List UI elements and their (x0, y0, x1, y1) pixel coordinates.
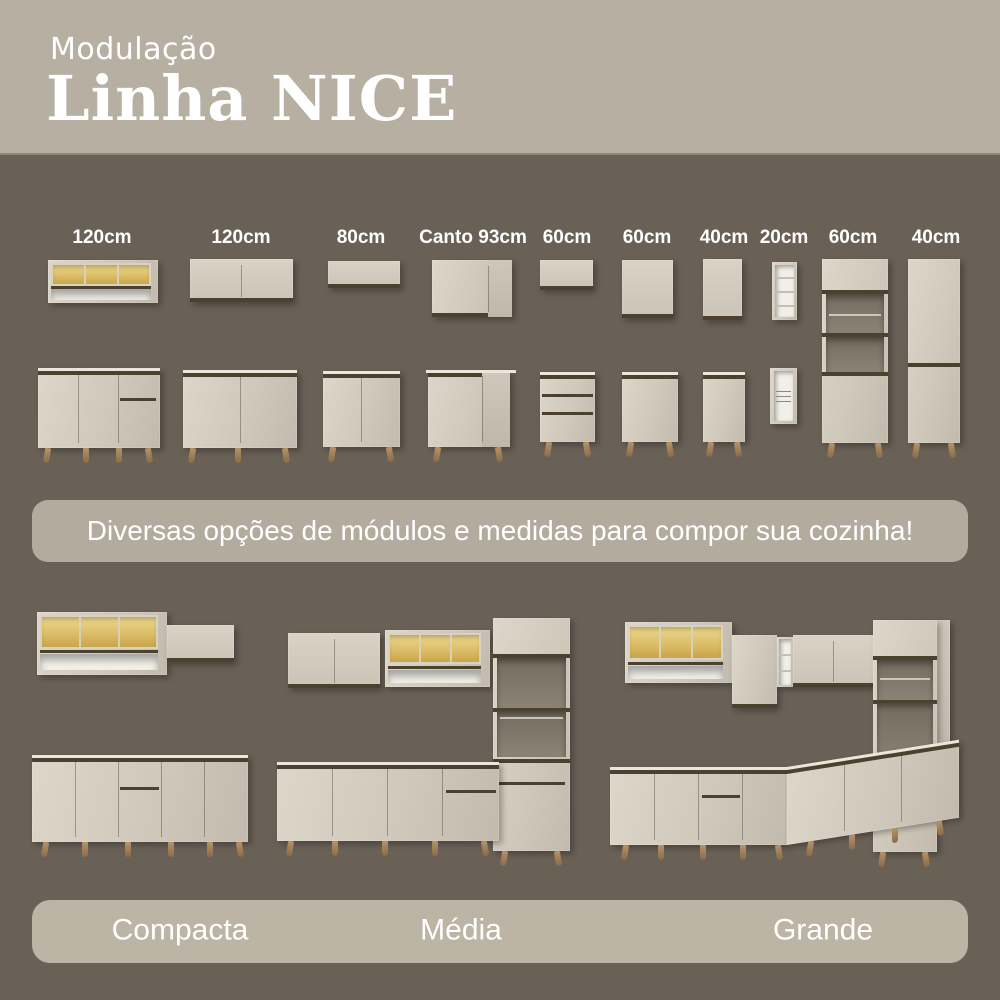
leg (878, 852, 886, 868)
module-wall-40 (703, 259, 742, 320)
drawer-gap (446, 790, 496, 793)
glass-panel (40, 615, 158, 649)
door-gap (442, 768, 443, 836)
rail (500, 717, 563, 719)
module-base-60 (622, 372, 678, 442)
door-gap (833, 641, 834, 682)
leg (41, 842, 49, 858)
leg (922, 852, 930, 868)
module-size-label: 40cm (912, 227, 961, 249)
top-trim (32, 758, 248, 762)
door-gap (204, 761, 205, 837)
module-wall-60-flip (540, 260, 593, 290)
bottom-trim (167, 658, 234, 662)
wall-flip-cabinet (167, 625, 234, 662)
drawer-gap (542, 412, 593, 415)
leg (386, 447, 394, 463)
drawer-gap (498, 782, 565, 785)
wall-glass-cabinet (385, 630, 490, 687)
module-size-label: 20cm (760, 227, 809, 249)
module-wall-120-glass (48, 260, 158, 303)
bottom-trim (732, 704, 777, 708)
leg (282, 448, 290, 464)
wall-glass-cabinet (625, 622, 732, 683)
rack-interior (774, 371, 793, 421)
door-gap (659, 625, 661, 660)
door-gap (488, 266, 489, 312)
module-wall-60 (622, 260, 673, 318)
top-trim (540, 375, 595, 379)
door-gap (161, 761, 162, 837)
wall-shelf-cubbies (777, 637, 793, 687)
top-trim (277, 765, 499, 769)
shelf (775, 277, 794, 279)
module-base-80 (323, 371, 400, 447)
open-shelf (388, 670, 481, 683)
module-base-120 (183, 370, 297, 448)
leg (912, 443, 920, 459)
leg (145, 448, 153, 464)
open-niche (877, 660, 933, 700)
kitchen-media (275, 598, 590, 883)
leg (658, 845, 664, 860)
leg (554, 851, 562, 867)
leg (188, 448, 196, 464)
door-gap (387, 768, 388, 836)
banner: Diversas opções de módulos e medidas par… (32, 500, 968, 562)
leg (236, 842, 244, 858)
leg (892, 827, 898, 843)
leg (621, 845, 629, 861)
module-base-40 (703, 372, 745, 442)
door-gap (78, 374, 79, 443)
promo-image: Modulação Linha NICE 120cm 120cm 80cm Ca… (0, 0, 1000, 1000)
door-gap (75, 761, 76, 837)
open-niche (826, 294, 884, 333)
leg (433, 447, 441, 463)
side-panel (482, 373, 510, 447)
wall-two-door-cabinet (793, 635, 873, 687)
door-gap (240, 376, 241, 443)
module-size-label: 40cm (700, 227, 749, 249)
door-gap (698, 773, 699, 840)
banner-text: Diversas opções de módulos e medidas par… (87, 515, 913, 547)
bottom-trim (793, 683, 873, 687)
leg (495, 447, 503, 463)
module-size-label: 60cm (543, 227, 592, 249)
wall-two-door-cabinet (288, 633, 380, 688)
size-label-compacta: Compacta (112, 913, 249, 947)
size-labels-bar: Compacta Média Grande (32, 900, 968, 963)
leg (168, 842, 174, 857)
base-cabinet-left (610, 767, 787, 845)
module-size-label: 120cm (72, 227, 131, 249)
bottom-trim (622, 314, 673, 318)
door-gap (450, 633, 452, 664)
collection-title: Linha NICE (46, 62, 457, 135)
door-gap (691, 625, 693, 660)
glass-panel (388, 633, 481, 664)
drawer-gap (702, 795, 740, 798)
base-cabinet (32, 755, 248, 842)
glass-panel (628, 625, 723, 660)
rail (880, 678, 930, 680)
door-gap (332, 768, 333, 836)
door-gap (79, 615, 81, 649)
leg (235, 448, 241, 463)
leg (700, 845, 706, 860)
shelf-interior (779, 639, 791, 685)
wall-corner-cabinet (732, 635, 777, 708)
shelf (779, 670, 791, 672)
shelf (775, 291, 794, 293)
module-base-60-drawers (540, 372, 595, 442)
bottom-trim (190, 298, 293, 302)
leg (875, 443, 883, 459)
wire-rack (776, 391, 791, 392)
module-size-label: Canto 93cm (419, 227, 527, 249)
wire-rack (776, 396, 791, 397)
leg (544, 442, 552, 458)
module-wall-80 (328, 261, 400, 288)
door-gap (241, 265, 242, 297)
module-size-label: 80cm (337, 227, 386, 249)
shelf (775, 305, 794, 307)
leg (481, 841, 489, 857)
kitchen-compacta (30, 600, 255, 880)
door-gap (419, 633, 421, 664)
door-gap (844, 764, 845, 831)
bottom-trim (540, 286, 593, 290)
trim (822, 372, 888, 376)
leg (286, 841, 294, 857)
drawer-gap (542, 394, 593, 397)
open-shelf (628, 666, 723, 679)
door-gap (901, 755, 902, 822)
bottom-trim (432, 313, 488, 317)
wall-glass-cabinet (37, 612, 167, 675)
module-shelf-20 (772, 262, 797, 320)
drawer-gap (120, 787, 159, 790)
leg (328, 447, 336, 463)
wire-rack (776, 401, 791, 402)
shelf (779, 654, 791, 656)
leg (116, 448, 122, 463)
kitchen-grande (605, 592, 975, 877)
shelf-trim (628, 662, 723, 665)
leg (626, 442, 634, 458)
tall-tower (493, 618, 570, 851)
module-wall-120 (190, 259, 293, 302)
module-size-label: 60cm (829, 227, 878, 249)
top-trim (38, 371, 160, 375)
open-shelf (40, 654, 158, 670)
door-gap (118, 761, 119, 837)
leg (734, 442, 742, 458)
leg (432, 841, 438, 856)
shelf-trim (388, 666, 481, 669)
shelf-interior (775, 265, 794, 317)
door-gap (654, 773, 655, 840)
door-gap (118, 374, 119, 443)
top-trim (622, 375, 678, 379)
leg (207, 842, 213, 857)
module-bottle-rack-20 (770, 368, 797, 424)
open-shelf (51, 289, 151, 300)
module-base-corner-93 (428, 370, 510, 447)
trim (908, 363, 960, 367)
leg (706, 442, 714, 458)
leg (332, 841, 338, 856)
leg (125, 842, 131, 857)
door-gap (117, 263, 119, 286)
module-tower-60 (822, 259, 888, 443)
leg (82, 842, 88, 857)
leg (83, 448, 89, 463)
base-cabinet (277, 762, 499, 841)
size-label-media: Média (420, 913, 502, 947)
open-niche (497, 658, 566, 708)
door-gap (84, 263, 86, 286)
drawer-gap (120, 398, 156, 401)
module-base-120-drawer (38, 368, 160, 448)
side-panel (488, 260, 512, 317)
size-label-grande: Grande (773, 913, 873, 947)
door-gap (361, 377, 362, 442)
header: Modulação Linha NICE (0, 0, 1000, 155)
leg (666, 442, 674, 458)
rail (829, 314, 881, 316)
modules-grid: 120cm 120cm 80cm Canto 93cm 60cm 60cm 40… (0, 155, 1000, 500)
door-gap (334, 639, 335, 683)
module-tower-40 (908, 259, 960, 443)
shelf-trim (40, 650, 158, 653)
leg (936, 820, 944, 836)
leg (948, 443, 956, 459)
leg (740, 845, 746, 860)
leg (382, 841, 388, 856)
bottom-trim (328, 284, 400, 288)
door-gap (742, 773, 743, 840)
open-niche (826, 337, 884, 372)
module-size-label: 60cm (623, 227, 672, 249)
glass-panel (51, 263, 151, 286)
leg (827, 443, 835, 459)
leg (583, 442, 591, 458)
door-gap (118, 615, 120, 649)
leg (806, 841, 814, 856)
bottom-trim (703, 316, 742, 320)
trim (493, 759, 570, 763)
module-size-label: 120cm (211, 227, 270, 249)
module-wall-corner-93 (432, 260, 512, 317)
leg (500, 851, 508, 867)
bottom-trim (288, 684, 380, 688)
leg (43, 448, 51, 464)
door-gap (482, 376, 483, 442)
leg (849, 834, 855, 850)
open-niche (497, 711, 566, 757)
leg (775, 845, 783, 861)
top-trim (703, 375, 745, 379)
